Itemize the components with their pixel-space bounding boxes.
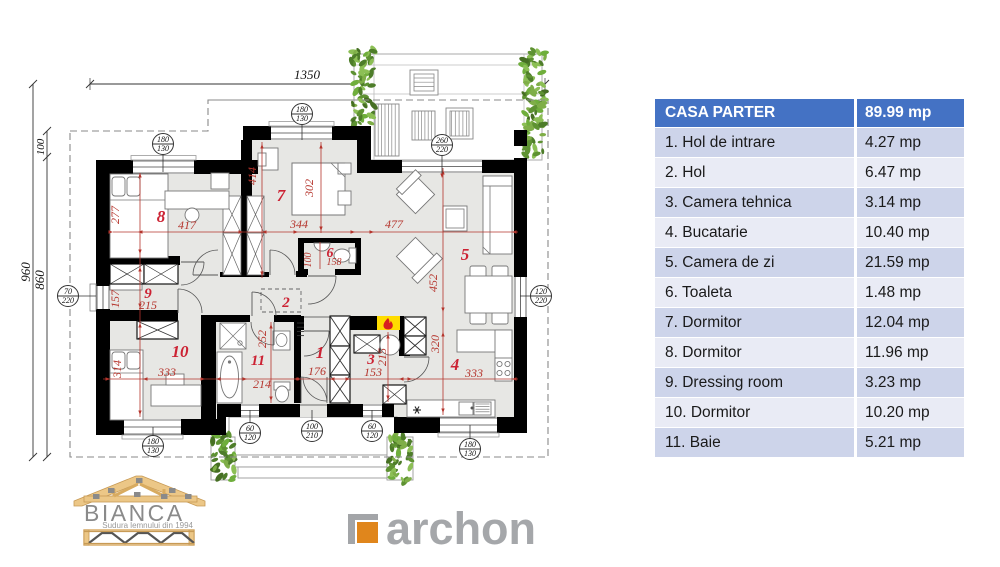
- svg-text:11: 11: [251, 353, 265, 369]
- svg-text:452: 452: [426, 274, 440, 292]
- svg-text:120: 120: [366, 431, 378, 440]
- svg-text:333: 333: [157, 365, 176, 379]
- svg-text:130: 130: [147, 446, 159, 455]
- svg-text:Sudura lemnului din 1994: Sudura lemnului din 1994: [102, 521, 193, 530]
- svg-text:180: 180: [464, 440, 476, 449]
- svg-text:130: 130: [157, 144, 169, 153]
- svg-text:320: 320: [428, 335, 442, 354]
- svg-text:120: 120: [244, 433, 256, 442]
- svg-text:210: 210: [306, 431, 318, 440]
- svg-text:417: 417: [178, 218, 197, 232]
- svg-text:215: 215: [375, 348, 389, 366]
- svg-text:252: 252: [255, 330, 269, 348]
- svg-text:414: 414: [245, 167, 259, 185]
- svg-text:100: 100: [303, 253, 314, 268]
- svg-text:314: 314: [110, 360, 124, 379]
- svg-text:860: 860: [32, 270, 47, 290]
- svg-text:5: 5: [461, 245, 470, 264]
- svg-text:1350: 1350: [294, 67, 321, 82]
- svg-text:60: 60: [368, 422, 376, 431]
- svg-text:120: 120: [535, 287, 547, 296]
- svg-text:130: 130: [464, 449, 476, 458]
- svg-text:100: 100: [306, 422, 318, 431]
- svg-text:220: 220: [535, 296, 547, 305]
- svg-text:6: 6: [327, 246, 334, 261]
- svg-text:302: 302: [302, 179, 316, 198]
- svg-text:70: 70: [64, 287, 72, 296]
- svg-text:4: 4: [450, 355, 460, 374]
- svg-text:60: 60: [246, 424, 254, 433]
- svg-text:220: 220: [62, 296, 74, 305]
- svg-text:180: 180: [157, 135, 169, 144]
- svg-text:960: 960: [18, 262, 33, 282]
- svg-text:1: 1: [316, 343, 325, 362]
- svg-text:archon: archon: [386, 503, 536, 554]
- svg-text:8: 8: [157, 207, 166, 226]
- svg-text:157: 157: [108, 289, 122, 308]
- svg-text:477: 477: [385, 217, 404, 231]
- svg-text:180: 180: [147, 437, 159, 446]
- svg-text:344: 344: [289, 217, 308, 231]
- svg-text:333: 333: [464, 366, 483, 380]
- svg-text:100: 100: [35, 138, 47, 155]
- svg-text:220: 220: [436, 145, 448, 154]
- svg-text:10: 10: [172, 342, 190, 361]
- svg-text:2: 2: [281, 295, 290, 311]
- svg-text:214: 214: [253, 377, 271, 391]
- svg-text:260: 260: [436, 136, 448, 145]
- svg-text:176: 176: [308, 364, 326, 378]
- svg-text:277: 277: [108, 205, 122, 224]
- svg-text:180: 180: [296, 105, 308, 114]
- svg-text:9: 9: [144, 286, 152, 302]
- svg-text:3: 3: [366, 352, 375, 368]
- svg-text:130: 130: [296, 114, 308, 123]
